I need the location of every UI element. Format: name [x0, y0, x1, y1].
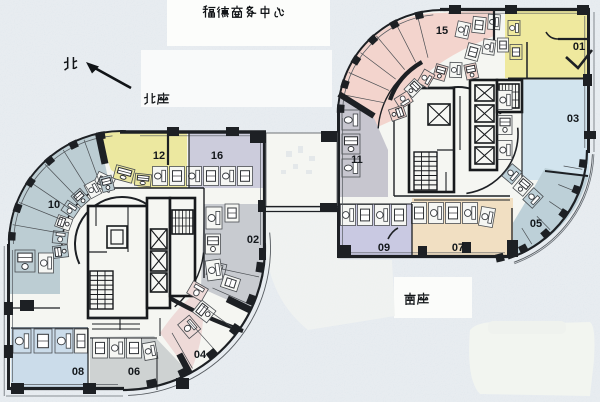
- svg-text:08: 08: [72, 366, 84, 378]
- svg-text:04: 04: [194, 349, 207, 361]
- svg-text:11: 11: [351, 154, 363, 166]
- svg-text:01: 01: [573, 41, 585, 53]
- svg-text:16: 16: [211, 150, 223, 162]
- svg-text:06: 06: [128, 366, 140, 378]
- svg-text:15: 15: [436, 25, 448, 37]
- svg-text:07: 07: [452, 242, 464, 254]
- svg-text:09: 09: [378, 242, 390, 254]
- svg-text:03: 03: [567, 113, 579, 125]
- svg-text:10: 10: [48, 199, 60, 211]
- svg-text:02: 02: [247, 234, 259, 246]
- svg-text:05: 05: [530, 218, 542, 230]
- svg-text:12: 12: [153, 150, 165, 162]
